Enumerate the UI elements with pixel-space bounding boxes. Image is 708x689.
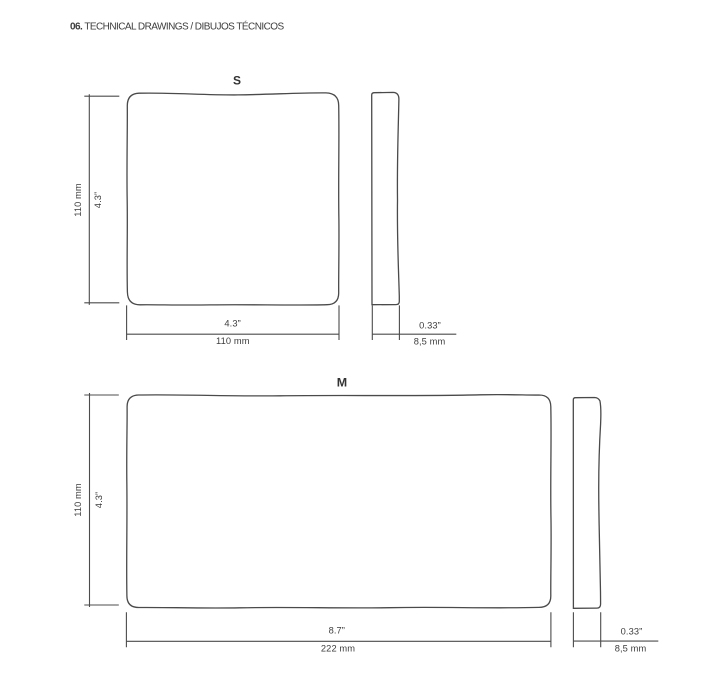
svg-text:06. TECHNICAL DRAWINGS / DIBUJ: 06. TECHNICAL DRAWINGS / DIBUJOS TÉCNICO… <box>70 20 284 33</box>
svg-text:4.3”: 4.3” <box>93 192 103 208</box>
svg-text:M: M <box>337 375 347 389</box>
svg-text:110 mm: 110 mm <box>73 183 83 217</box>
svg-text:8.7”: 8.7” <box>329 625 345 635</box>
svg-text:0.33”: 0.33” <box>621 627 643 637</box>
svg-text:110 mm: 110 mm <box>73 483 83 517</box>
svg-text:110 mm: 110 mm <box>216 336 250 346</box>
svg-text:222 mm: 222 mm <box>321 643 355 653</box>
svg-text:8,5 mm: 8,5 mm <box>414 337 446 347</box>
svg-text:0.33”: 0.33” <box>419 320 441 330</box>
svg-text:4.3”: 4.3” <box>224 319 240 329</box>
svg-text:S: S <box>233 74 241 88</box>
svg-text:4.3”: 4.3” <box>94 492 104 508</box>
svg-text:8,5 mm: 8,5 mm <box>615 644 647 654</box>
